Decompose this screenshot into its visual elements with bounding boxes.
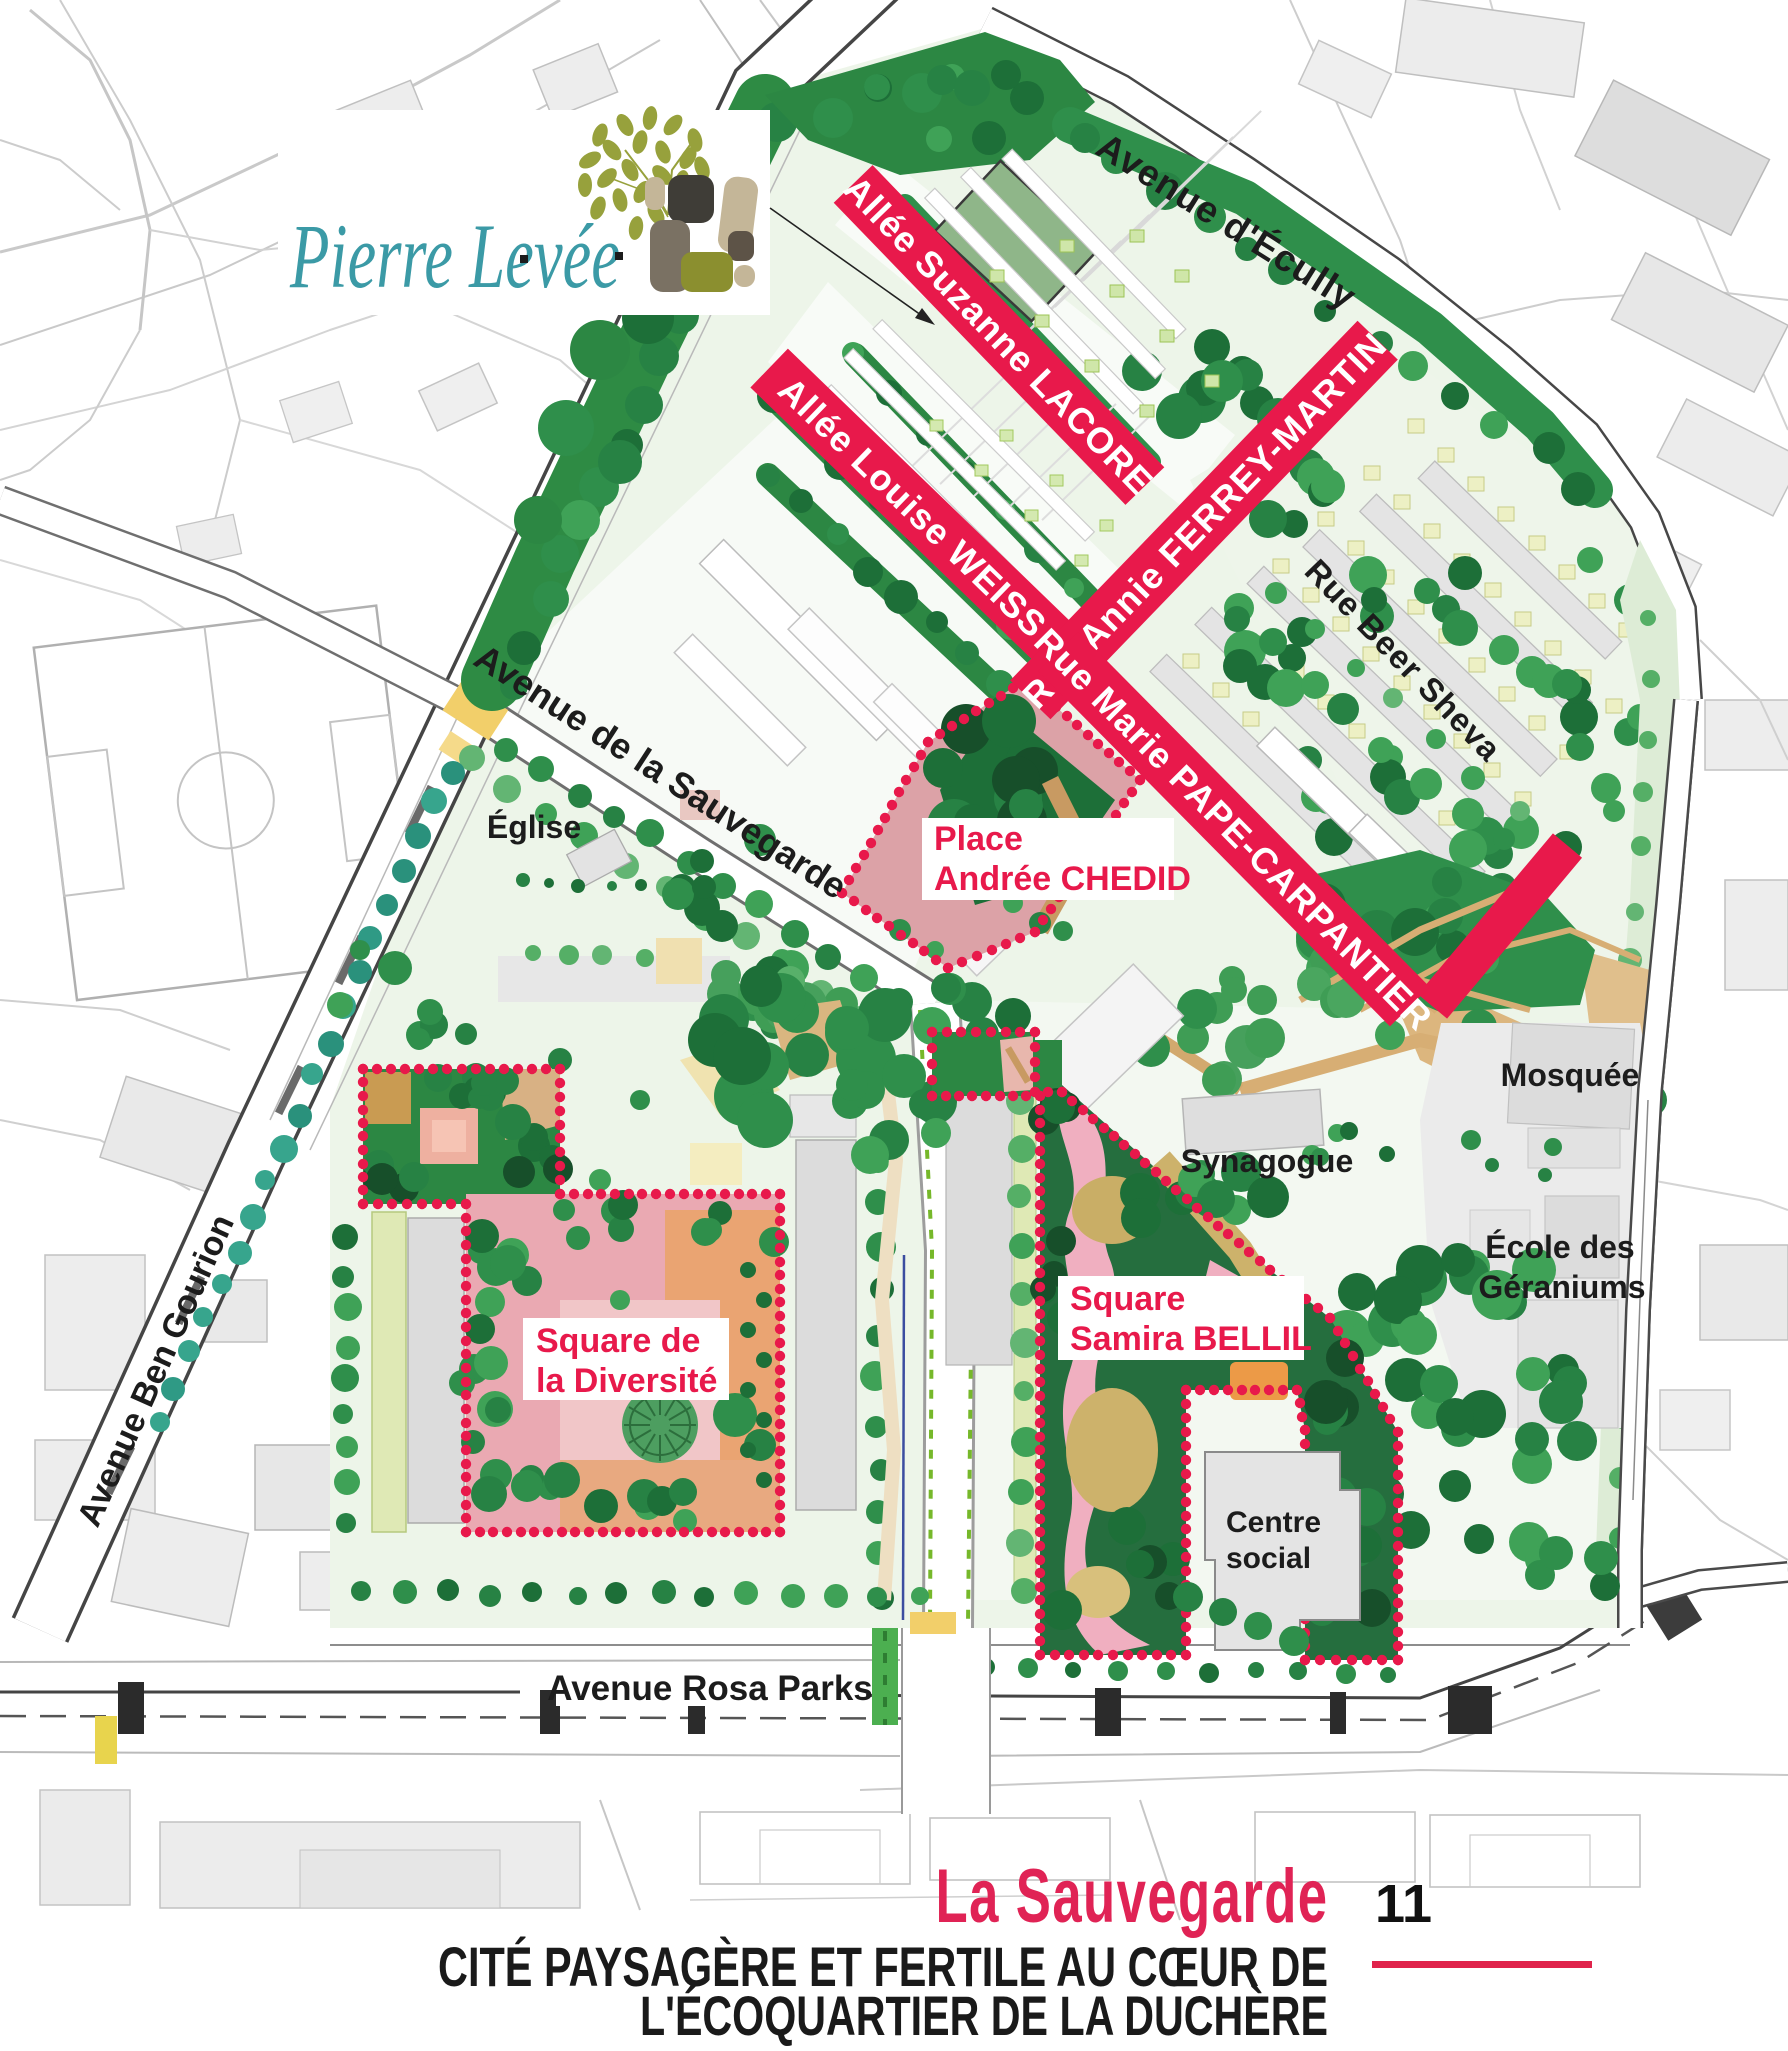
svg-text:Place: Place xyxy=(934,820,1023,858)
svg-text:Square de: Square de xyxy=(536,1322,700,1360)
svg-text:Géraniums: Géraniums xyxy=(1478,1269,1645,1305)
svg-text:Centre: Centre xyxy=(1226,1506,1321,1539)
svg-text:École des: École des xyxy=(1485,1229,1634,1265)
svg-text:la Diversité: la Diversité xyxy=(536,1362,717,1400)
svg-text:Mosquée: Mosquée xyxy=(1501,1057,1640,1093)
svg-text:Andrée CHEDID: Andrée CHEDID xyxy=(934,860,1191,898)
svg-text:L'ÉCOQUARTIER DE LA DUCHÈRE: L'ÉCOQUARTIER DE LA DUCHÈRE xyxy=(640,1984,1328,2046)
svg-text:Église: Église xyxy=(487,809,581,845)
svg-text:La Sauvegarde: La Sauvegarde xyxy=(936,1854,1329,1939)
svg-text:Samira BELLIL: Samira BELLIL xyxy=(1070,1320,1312,1358)
svg-text:Avenue Rosa Parks: Avenue Rosa Parks xyxy=(547,1669,873,1708)
svg-text:social: social xyxy=(1226,1542,1311,1575)
svg-text:Pierre Levée: Pierre Levée xyxy=(289,205,620,307)
svg-text:Square: Square xyxy=(1070,1280,1185,1318)
svg-text:Synagogue: Synagogue xyxy=(1181,1143,1353,1179)
svg-text:11: 11 xyxy=(1375,1874,1432,1934)
